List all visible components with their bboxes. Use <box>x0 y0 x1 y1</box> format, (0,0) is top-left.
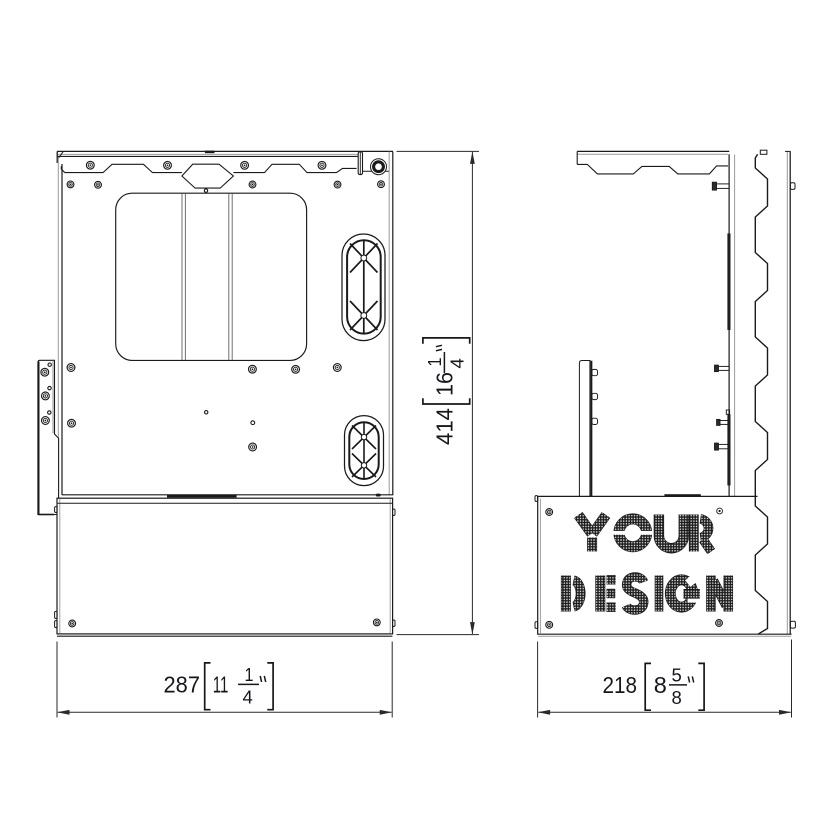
svg-text:1: 1 <box>424 358 445 367</box>
svg-text:5: 5 <box>672 664 682 685</box>
svg-text:8: 8 <box>654 672 667 698</box>
svg-text:414: 414 <box>432 408 458 445</box>
svg-text:218: 218 <box>603 672 638 698</box>
svg-text:1: 1 <box>245 664 254 685</box>
svg-text:287: 287 <box>164 672 201 698</box>
svg-text:16: 16 <box>432 372 458 396</box>
svg-text:4: 4 <box>243 687 253 708</box>
svg-text:4: 4 <box>447 358 468 368</box>
svg-text:11: 11 <box>213 672 229 698</box>
svg-text:8: 8 <box>672 687 682 708</box>
